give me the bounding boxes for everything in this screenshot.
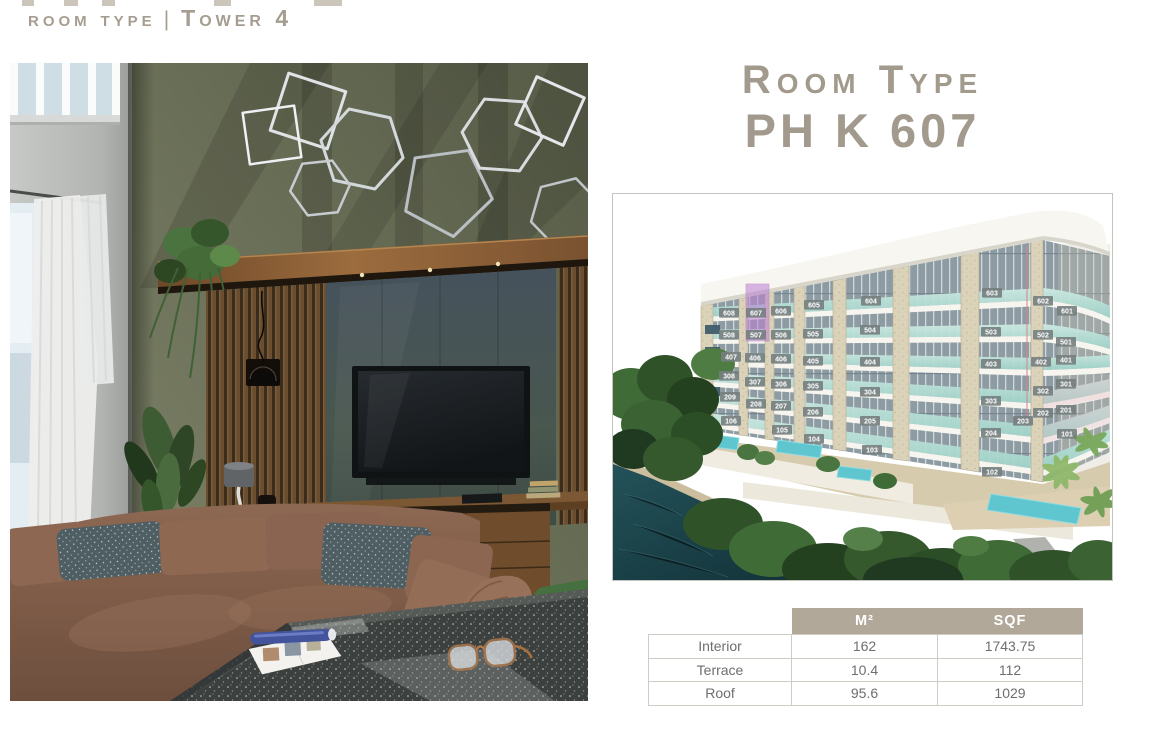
svg-text:206: 206 <box>807 410 819 417</box>
header-tower-label: Tower 4 <box>181 5 292 31</box>
svg-text:304: 304 <box>864 390 876 397</box>
svg-text:506: 506 <box>775 333 787 340</box>
svg-text:505: 505 <box>807 332 819 339</box>
unit-badge: 106 <box>721 416 741 426</box>
table-header-sqf: SQF <box>938 608 1083 635</box>
table-row: Interior 162 1743.75 <box>649 635 1083 659</box>
table-header-m2: M² <box>792 608 938 635</box>
unit-badge: 205 <box>860 416 880 426</box>
svg-text:501: 501 <box>1060 340 1072 347</box>
svg-text:205: 205 <box>864 419 876 426</box>
unit-badge: 405 <box>803 356 823 366</box>
svg-text:305: 305 <box>807 384 819 391</box>
unit-badge: 504 <box>860 325 880 335</box>
unit-badge: 602 <box>1033 296 1053 306</box>
header-divider: | <box>156 8 181 31</box>
svg-text:503: 503 <box>985 330 997 337</box>
row-sqf-value: 1029 <box>938 682 1083 706</box>
table-row: Roof 95.6 1029 <box>649 682 1083 706</box>
svg-text:606: 606 <box>775 309 787 316</box>
svg-text:403: 403 <box>985 362 997 369</box>
unit-badge: 603 <box>982 288 1002 298</box>
room-type-title: Room Type PH K 607 <box>612 60 1113 155</box>
unit-badge: 404 <box>860 357 880 367</box>
svg-text:605: 605 <box>808 303 820 310</box>
unit-badge: 407 <box>721 352 741 362</box>
spotlight <box>496 262 500 266</box>
unit-number-label: PH K 607 <box>612 106 1113 155</box>
unit-badge: 605 <box>804 300 824 310</box>
svg-text:201: 201 <box>1060 408 1072 415</box>
unit-badge: 208 <box>746 399 766 409</box>
unit-badge: 207 <box>771 401 791 411</box>
row-label: Roof <box>649 682 792 706</box>
svg-text:303: 303 <box>985 399 997 406</box>
table-header-empty <box>649 608 792 635</box>
unit-badge: 403 <box>981 359 1001 369</box>
unit-badge: 204 <box>981 428 1001 438</box>
svg-text:406: 406 <box>775 357 787 364</box>
svg-text:105: 105 <box>776 428 788 435</box>
brochure-page: room type|Tower 4 <box>0 0 1170 734</box>
row-m2-value: 162 <box>792 635 938 659</box>
row-sqf-value: 112 <box>938 658 1083 682</box>
unit-badge: 406 <box>745 353 765 363</box>
svg-text:601: 601 <box>1061 309 1073 316</box>
unit-badge: 601 <box>1057 306 1077 316</box>
unit-badge: 501 <box>1056 337 1076 347</box>
unit-badge: 103 <box>862 445 882 455</box>
unit-badge: 406 <box>771 354 791 364</box>
unit-badge: 209 <box>720 392 740 402</box>
svg-text:204: 204 <box>985 431 997 438</box>
svg-text:602: 602 <box>1037 299 1049 306</box>
spotlight <box>360 273 364 277</box>
wall-tv <box>352 366 530 485</box>
svg-text:102: 102 <box>986 470 998 477</box>
unit-badge: 301 <box>1056 379 1076 389</box>
crop-artifact <box>314 0 342 6</box>
unit-badge: 105 <box>772 425 792 435</box>
unit-badge: 505 <box>803 329 823 339</box>
svg-text:103: 103 <box>866 448 878 455</box>
svg-text:207: 207 <box>775 404 787 411</box>
svg-text:508: 508 <box>723 333 735 340</box>
unit-badge: 304 <box>860 387 880 397</box>
unit-badge: 502 <box>1033 330 1053 340</box>
svg-text:106: 106 <box>725 419 737 426</box>
unit-badge: 506 <box>771 330 791 340</box>
interior-render-photo <box>10 63 588 701</box>
media-box <box>462 493 502 503</box>
table-header-row: M² SQF <box>649 608 1083 635</box>
unit-badge: 508 <box>719 330 739 340</box>
unit-badge: 307 <box>745 377 765 387</box>
svg-text:406: 406 <box>749 356 761 363</box>
svg-text:401: 401 <box>1060 358 1072 365</box>
svg-text:301: 301 <box>1060 382 1072 389</box>
unit-badge: 302 <box>1033 386 1053 396</box>
row-label: Terrace <box>649 658 792 682</box>
unit-badge: 604 <box>861 296 881 306</box>
svg-text:405: 405 <box>807 359 819 366</box>
svg-text:104: 104 <box>808 437 820 444</box>
header-section-label: room type <box>28 8 156 31</box>
svg-text:302: 302 <box>1037 389 1049 396</box>
page-header: room type|Tower 4 <box>28 5 292 32</box>
table-row: Terrace 10.4 112 <box>649 658 1083 682</box>
unit-badge: 507 <box>746 330 766 340</box>
svg-text:202: 202 <box>1037 411 1049 418</box>
svg-text:603: 603 <box>986 291 998 298</box>
unit-badge: 102 <box>982 467 1002 477</box>
svg-text:407: 407 <box>725 355 737 362</box>
svg-text:308: 308 <box>723 374 735 381</box>
spotlight <box>428 268 432 272</box>
unit-badge: 303 <box>981 396 1001 406</box>
room-type-label: Room Type <box>612 60 1113 100</box>
row-m2-value: 95.6 <box>792 682 938 706</box>
svg-text:502: 502 <box>1037 333 1049 340</box>
svg-text:101: 101 <box>1061 432 1073 439</box>
svg-text:604: 604 <box>865 299 877 306</box>
svg-text:608: 608 <box>723 311 735 318</box>
svg-text:203: 203 <box>1017 419 1029 426</box>
unit-badge: 608 <box>719 308 739 318</box>
svg-text:507: 507 <box>750 333 762 340</box>
upper-window <box>10 63 120 125</box>
row-sqf-value: 1743.75 <box>938 635 1083 659</box>
svg-text:402: 402 <box>1035 360 1047 367</box>
unit-badge: 206 <box>803 407 823 417</box>
svg-text:404: 404 <box>864 360 876 367</box>
building-diagram: 6086076066056046036026015085075065055045… <box>612 193 1113 581</box>
unit-badge: 503 <box>981 327 1001 337</box>
unit-badge: 202 <box>1033 408 1053 418</box>
unit-badge: 308 <box>719 371 739 381</box>
svg-text:208: 208 <box>750 402 762 409</box>
unit-badge: 606 <box>771 306 791 316</box>
svg-text:306: 306 <box>775 382 787 389</box>
svg-text:209: 209 <box>724 395 736 402</box>
slat-panel-right <box>559 266 588 525</box>
unit-badge: 101 <box>1057 429 1077 439</box>
row-m2-value: 10.4 <box>792 658 938 682</box>
svg-text:307: 307 <box>749 380 761 387</box>
book-stack <box>526 480 561 498</box>
unit-badge: 402 <box>1031 357 1051 367</box>
row-label: Interior <box>649 635 792 659</box>
svg-text:504: 504 <box>864 328 876 335</box>
svg-text:607: 607 <box>750 311 762 318</box>
unit-badge: 607 <box>746 308 766 318</box>
unit-badge: 203 <box>1013 416 1033 426</box>
unit-badge: 104 <box>804 434 824 444</box>
unit-badge: 201 <box>1056 405 1076 415</box>
unit-badge: 306 <box>771 379 791 389</box>
unit-badge: 401 <box>1056 355 1076 365</box>
area-table: M² SQF Interior 162 1743.75 Terrace 10.4… <box>648 608 1083 706</box>
unit-badge: 305 <box>803 381 823 391</box>
